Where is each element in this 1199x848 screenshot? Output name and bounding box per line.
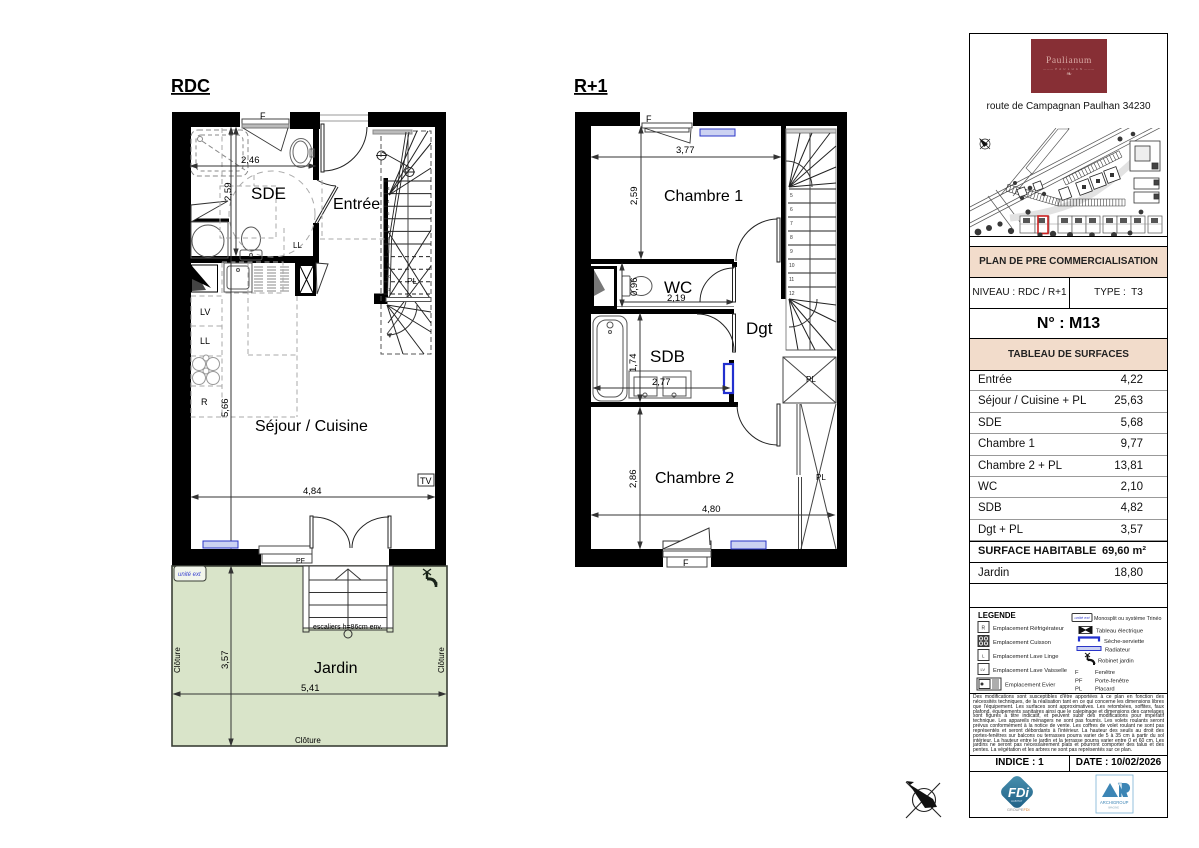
svg-text:Entrée: Entrée [333, 196, 380, 213]
svg-text:Chambre 2: Chambre 2 [655, 470, 734, 487]
svg-text:R: R [201, 397, 208, 407]
svg-text:L: L [982, 654, 985, 659]
svg-text:9: 9 [387, 262, 390, 267]
svg-text:PL: PL [1075, 687, 1083, 693]
svg-text:0,96: 0,96 [629, 278, 640, 297]
svg-text:GROUPEFDI: GROUPEFDI [1007, 808, 1030, 812]
svg-text:8: 8 [790, 235, 793, 241]
svg-text:8: 8 [387, 249, 390, 254]
svg-text:Emplacement Lave Vaisselle: Emplacement Lave Vaisselle [993, 668, 1067, 674]
svg-text:Sèche-serviette: Sèche-serviette [1104, 639, 1144, 645]
svg-text:11: 11 [789, 277, 794, 283]
svg-text:5,66: 5,66 [220, 399, 231, 418]
svg-text:12: 12 [789, 291, 795, 297]
svg-text:ARCHIGROUP: ARCHIGROUP [1100, 800, 1129, 805]
svg-text:3: 3 [387, 186, 390, 191]
svg-text:10: 10 [386, 274, 392, 279]
svg-text:IMAGINE: IMAGINE [1108, 806, 1119, 810]
svg-text:Monosplit ou système Trinéo: Monosplit ou système Trinéo [1094, 616, 1161, 622]
svg-text:Clôture: Clôture [437, 647, 446, 673]
svg-text:PL: PL [806, 375, 816, 384]
svg-text:PF: PF [296, 558, 305, 565]
svg-text:11: 11 [386, 287, 391, 292]
svg-text:F: F [683, 558, 689, 568]
svg-text:2,77: 2,77 [652, 377, 671, 388]
svg-text:7: 7 [790, 221, 793, 227]
svg-text:unité ext: unité ext [1075, 615, 1091, 620]
svg-text:escaliers h=86cm env.: escaliers h=86cm env. [313, 624, 382, 631]
svg-text:Dgt: Dgt [746, 319, 773, 338]
svg-text:PL: PL [816, 473, 826, 482]
svg-text:PL: PL [407, 276, 418, 286]
svg-text:Emplacement Cuisson: Emplacement Cuisson [993, 640, 1051, 646]
svg-text:Placard: Placard [1095, 687, 1115, 693]
svg-text:2,46: 2,46 [241, 155, 260, 166]
svg-text:4,84: 4,84 [303, 486, 322, 497]
svg-text:FDi: FDi [1008, 785, 1029, 800]
svg-text:6: 6 [790, 207, 793, 213]
svg-text:3,77: 3,77 [676, 145, 695, 156]
svg-text:2,86: 2,86 [628, 470, 639, 489]
svg-text:Robinet jardin: Robinet jardin [1098, 659, 1134, 665]
svg-text:F: F [260, 111, 266, 121]
svg-text:PF: PF [1075, 679, 1083, 685]
svg-text:TV: TV [420, 476, 432, 486]
svg-text:Fenêtre: Fenêtre [1095, 670, 1115, 676]
svg-text:F: F [1075, 670, 1079, 676]
svg-text:Emplacement Evier: Emplacement Evier [1005, 683, 1055, 689]
svg-text:Emplacement Réfrigérateur: Emplacement Réfrigérateur [993, 626, 1064, 632]
svg-text:RDC: RDC [171, 76, 210, 96]
svg-text:Chambre 1: Chambre 1 [664, 188, 743, 205]
svg-text:3,57: 3,57 [220, 651, 231, 670]
svg-text:R: R [982, 626, 986, 632]
svg-text:1,74: 1,74 [628, 354, 639, 373]
svg-text:LV: LV [981, 667, 986, 672]
svg-text:LL: LL [293, 241, 302, 250]
svg-text:F: F [646, 114, 652, 124]
svg-text:5: 5 [790, 193, 793, 199]
svg-text:unité ext: unité ext [178, 572, 201, 578]
svg-text:LV: LV [200, 307, 210, 317]
svg-text:Emplacement Lave Linge: Emplacement Lave Linge [993, 654, 1058, 660]
svg-text:SDE: SDE [251, 184, 286, 203]
svg-text:SDB: SDB [650, 347, 685, 366]
svg-text:9: 9 [790, 249, 793, 255]
svg-text:5: 5 [387, 211, 390, 216]
svg-text:Clôture: Clôture [173, 647, 182, 673]
svg-text:Jardin: Jardin [314, 660, 358, 677]
svg-text:10: 10 [789, 263, 795, 269]
svg-text:2,59: 2,59 [629, 187, 640, 206]
svg-text:6: 6 [387, 224, 390, 229]
svg-text:2,59: 2,59 [223, 183, 234, 202]
svg-text:5,41: 5,41 [301, 683, 320, 694]
svg-text:Tableau électrique: Tableau électrique [1096, 629, 1143, 635]
svg-text:Clôture: Clôture [295, 736, 321, 745]
svg-text:R+1: R+1 [574, 76, 608, 96]
svg-text:2,19: 2,19 [667, 293, 686, 304]
svg-text:4: 4 [387, 199, 390, 204]
svg-text:4,80: 4,80 [702, 504, 721, 515]
svg-text:Porte-fenêtre: Porte-fenêtre [1095, 679, 1129, 685]
svg-text:Radiateur: Radiateur [1105, 648, 1130, 654]
svg-text:LL: LL [200, 336, 210, 346]
svg-text:Séjour / Cuisine: Séjour / Cuisine [255, 418, 368, 435]
svg-text:HABITAT: HABITAT [1011, 799, 1023, 803]
